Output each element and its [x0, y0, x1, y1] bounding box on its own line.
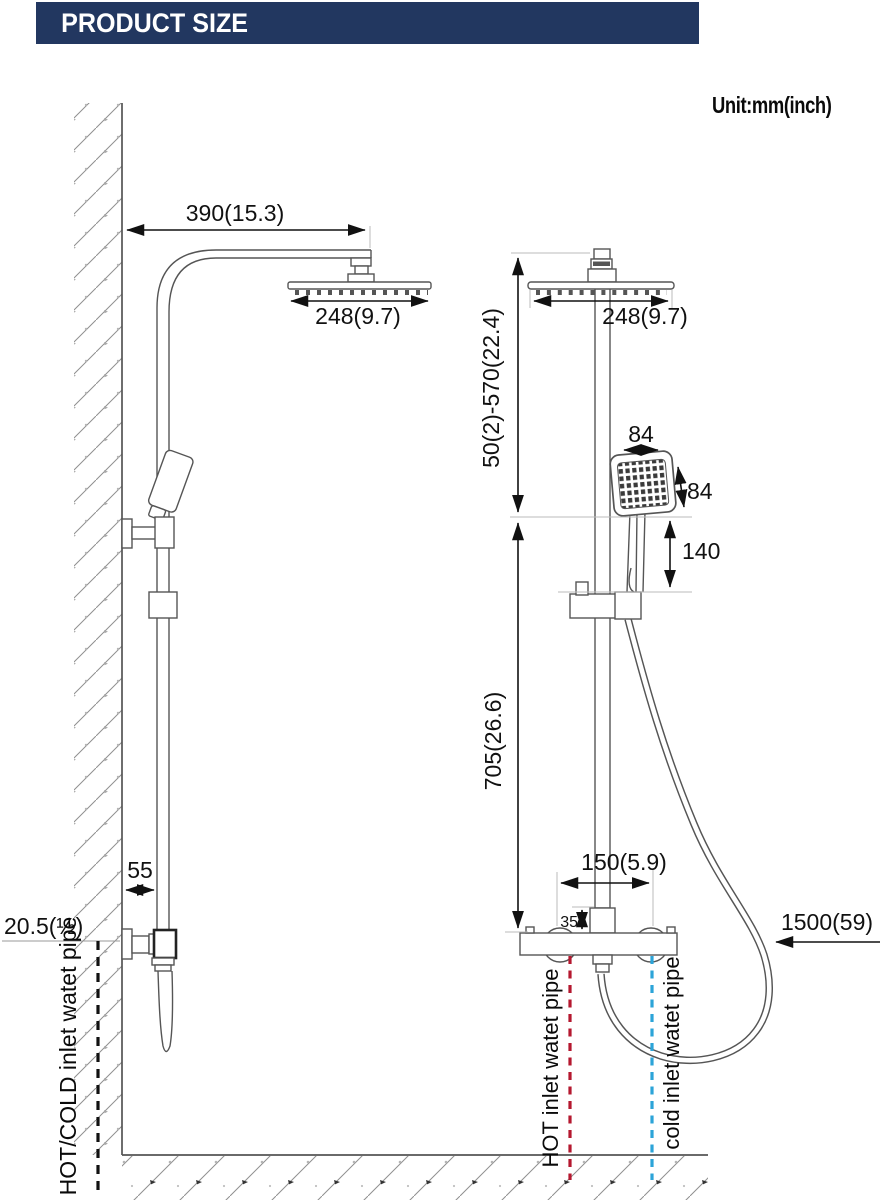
arm-connector [348, 258, 374, 282]
dim-hose-length-label: 1500(59) [781, 909, 873, 935]
hand-shower-nozzle-grid [617, 459, 669, 509]
floor-hatching [122, 1156, 708, 1200]
dim-arm-length-label: 390(15.3) [186, 200, 284, 226]
product-size-page: PRODUCT SIZE Unit:mm(inch) [0, 0, 882, 1200]
slider-clamp-side [149, 592, 177, 618]
dim-valve-offset: 35 [560, 907, 594, 931]
cold-inlet-label: cold inlet watet pipe [659, 956, 684, 1149]
shower-side-view: 390(15.3) 248(9.7) 55 20.5(½) HOT/COLD i… [2, 200, 431, 1197]
hose-side [158, 971, 173, 1052]
dim-height-range-label: 50(2)-570(22.4) [478, 308, 504, 468]
hot-inlet-label: HOT inlet watet pipe [538, 969, 563, 1168]
hotcold-supply-label: HOT/COLD inlet watet pipe [55, 917, 81, 1196]
dimension-diagram: 390(15.3) 248(9.7) 55 20.5(½) HOT/COLD i… [0, 0, 882, 1200]
dim-wall-to-pipe: 55 [126, 857, 154, 890]
pipe-coupling-front [590, 908, 615, 933]
floor-section [122, 1155, 708, 1200]
dim-hand-width: 84 [624, 421, 658, 450]
dim-inlet-spacing-label: 150(5.9) [581, 849, 667, 875]
dim-head-width-front-label: 248(9.7) [602, 303, 688, 329]
dim-arm-length: 390(15.3) [127, 200, 370, 248]
dim-hand-face: 84 [678, 467, 713, 507]
dim-hose-length: 1500(59) [776, 909, 880, 942]
wall-bracket-side [122, 517, 174, 548]
dim-hand-width-label: 84 [628, 421, 654, 447]
valve-body [520, 933, 677, 955]
hand-shower-front [610, 450, 677, 516]
dim-handle-length-label: 140 [682, 538, 720, 564]
dim-wall-to-pipe-label: 55 [127, 857, 153, 883]
hand-shower-hose [601, 619, 769, 1060]
dim-hand-face-label: 84 [687, 478, 713, 504]
valve-front [520, 927, 677, 972]
riser-arm-inner-line [169, 258, 371, 935]
shower-front-view: 248(9.7) 50(2)-570(22.4) 705(26.6) 84 [478, 249, 880, 1180]
hose-nut [593, 955, 612, 964]
valve-side [122, 929, 176, 971]
dim-pole-height-label: 705(26.6) [480, 692, 506, 790]
dim-head-width-side-label: 248(9.7) [315, 303, 401, 329]
dim-head-width-side: 248(9.7) [291, 301, 428, 329]
top-connector-front [588, 249, 616, 282]
dim-height-range: 50(2)-570(22.4) [478, 253, 590, 512]
riser-arm-outer-line [157, 250, 371, 935]
dim-valve-offset-label: 35 [560, 914, 578, 931]
rain-head-side [288, 282, 431, 293]
hand-shower-handle [627, 511, 645, 592]
